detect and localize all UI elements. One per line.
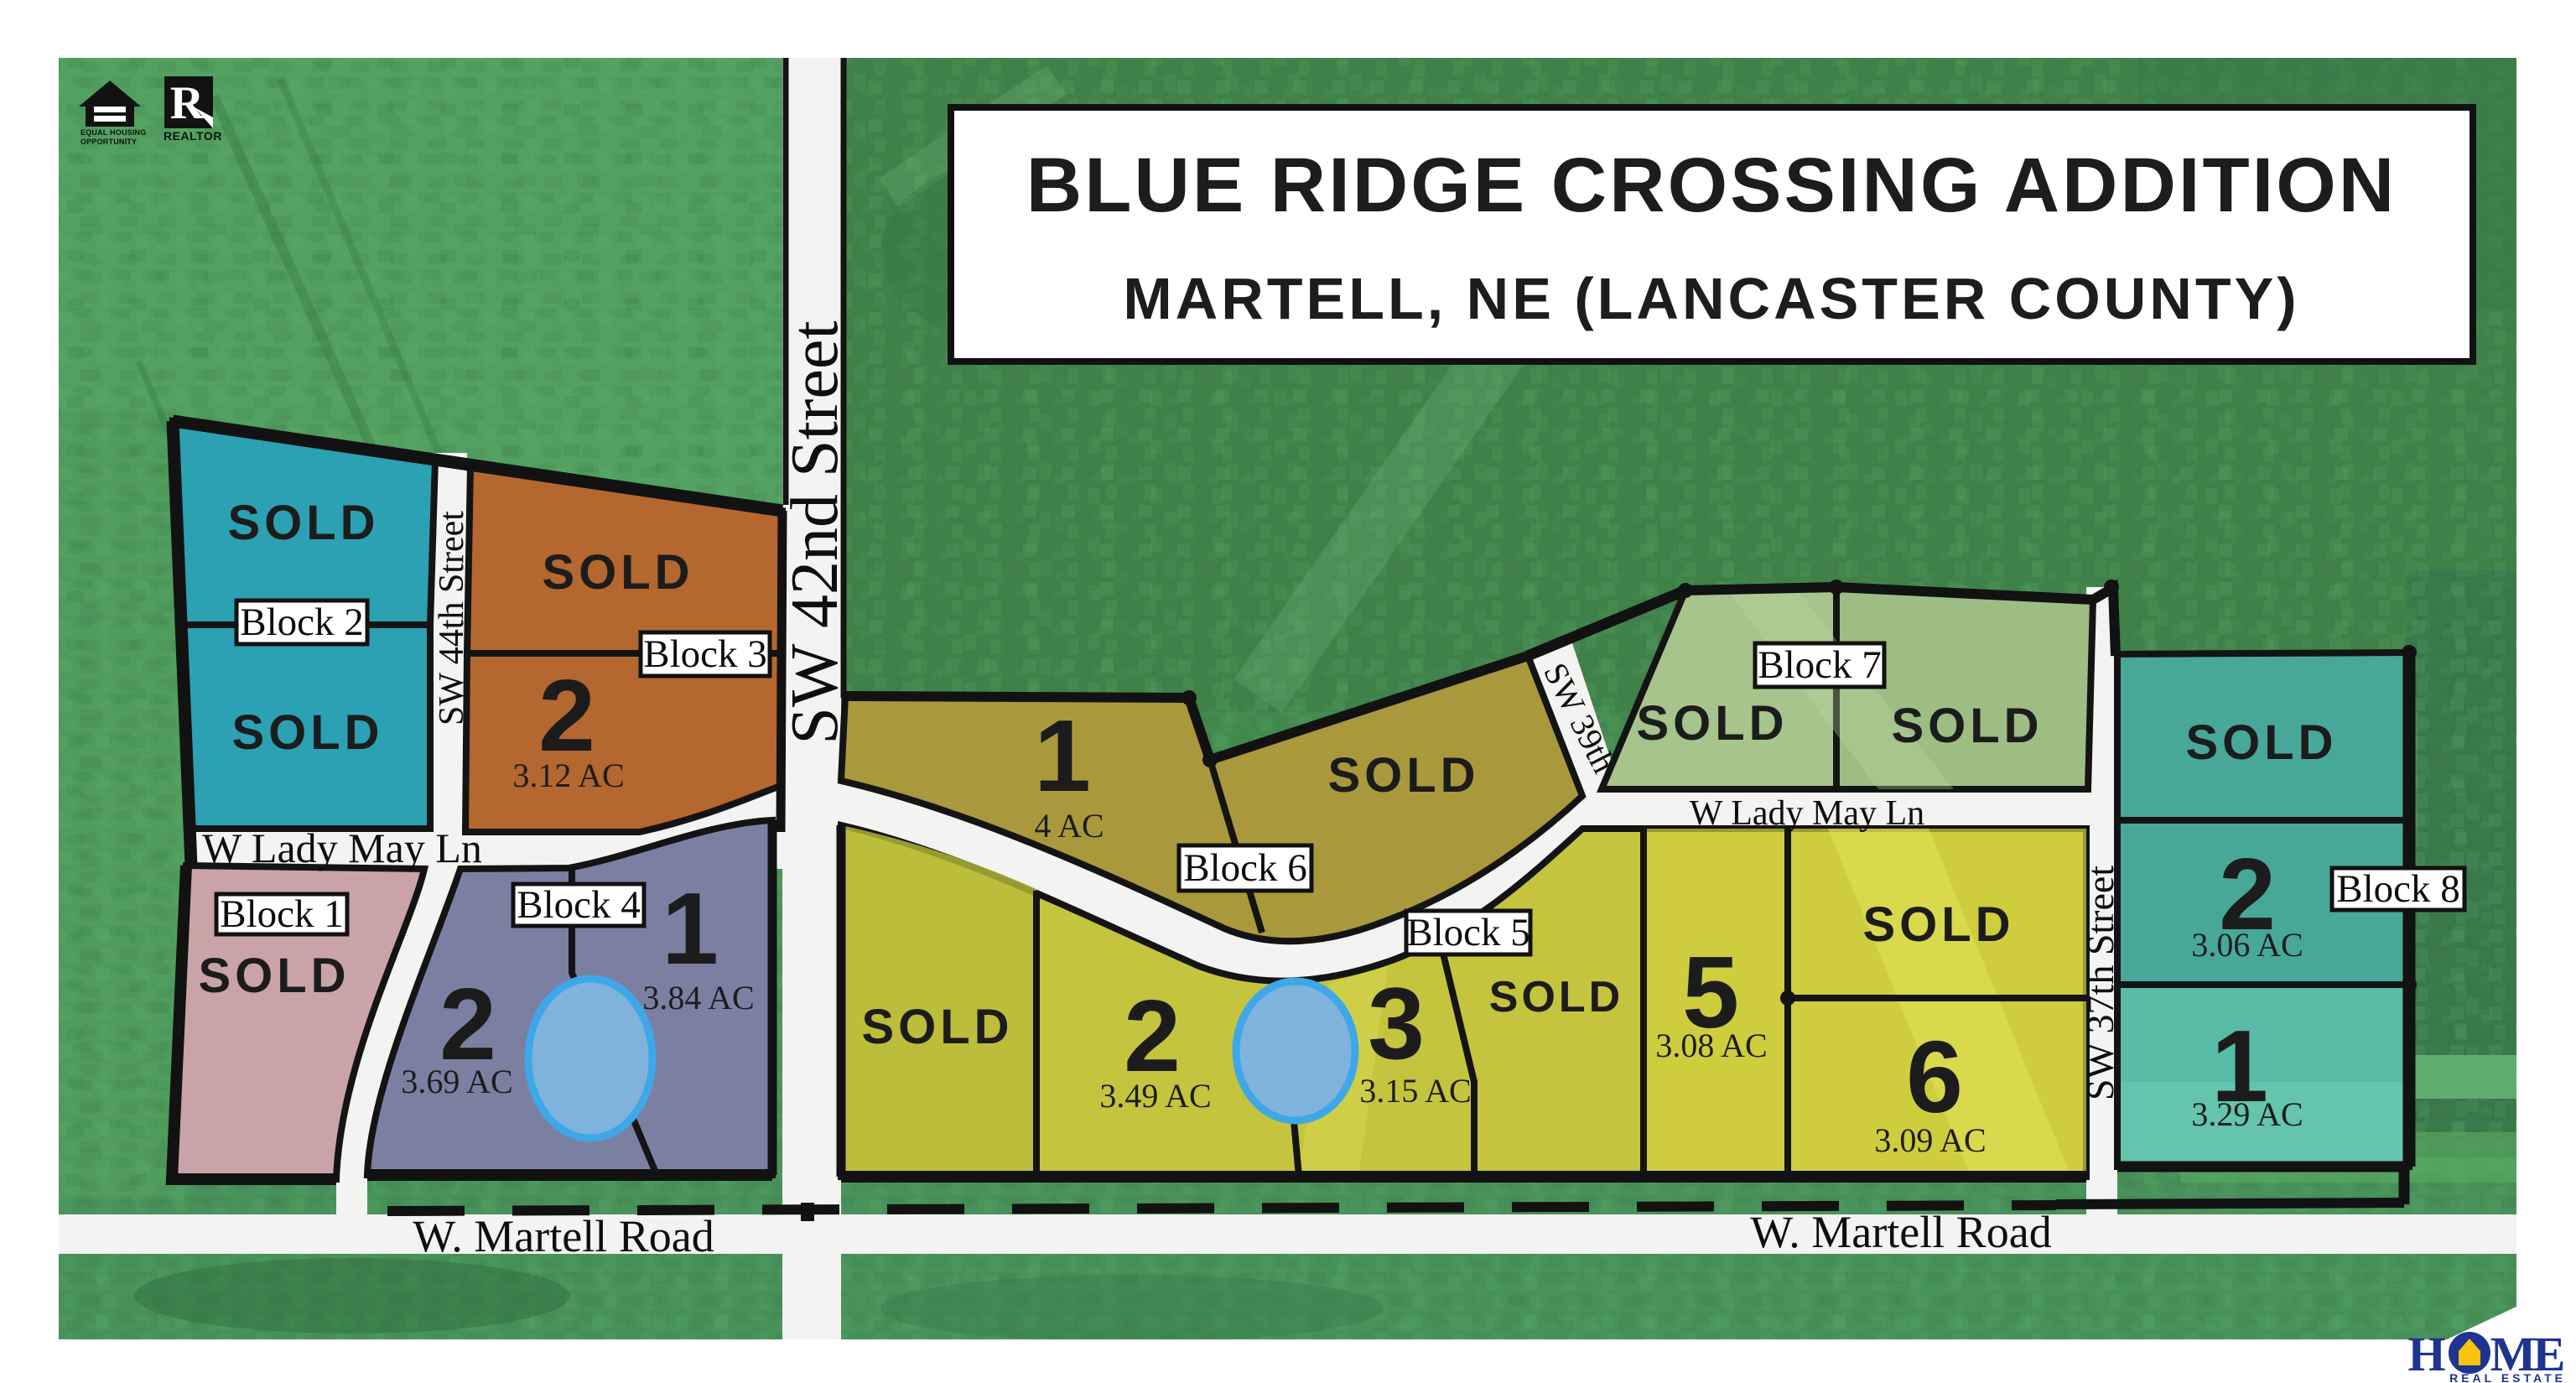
svg-text:Block 6: Block 6: [1183, 846, 1307, 890]
svg-text:Block 3: Block 3: [643, 632, 767, 676]
svg-text:3.69 AC: 3.69 AC: [401, 1063, 512, 1100]
svg-text:3: 3: [1368, 966, 1425, 1080]
svg-text:SW 44th Street: SW 44th Street: [433, 511, 471, 725]
svg-text:3.08 AC: 3.08 AC: [1655, 1027, 1767, 1064]
svg-text:OPPORTUNITY: OPPORTUNITY: [80, 138, 137, 146]
svg-text:SW 42nd Street: SW 42nd Street: [778, 320, 852, 744]
svg-text:SOLD: SOLD: [861, 1000, 1013, 1054]
svg-text:W Lady May Ln: W Lady May Ln: [1690, 794, 1924, 833]
svg-text:R: R: [170, 77, 205, 129]
svg-text:3.06 AC: 3.06 AC: [2191, 926, 2303, 964]
svg-text:6: 6: [1906, 1020, 1963, 1134]
svg-text:MARTELL, NE (LANCASTER COUNTY): MARTELL, NE (LANCASTER COUNTY): [1123, 266, 2299, 331]
svg-text:2: 2: [538, 658, 595, 772]
svg-text:SOLD: SOLD: [1327, 748, 1479, 803]
svg-text:W. Martell Road: W. Martell Road: [1750, 1207, 2051, 1257]
svg-text:3.49 AC: 3.49 AC: [1099, 1077, 1211, 1115]
svg-text:2: 2: [1124, 979, 1181, 1093]
svg-text:BLUE RIDGE CROSSING ADDITION: BLUE RIDGE CROSSING ADDITION: [1026, 143, 2397, 228]
svg-text:1: 1: [1034, 699, 1091, 813]
svg-text:SOLD: SOLD: [1862, 897, 2014, 952]
svg-text:SW 37th Street: SW 37th Street: [2079, 866, 2122, 1100]
svg-text:3.29 AC: 3.29 AC: [2191, 1095, 2303, 1133]
svg-text:SOLD: SOLD: [1489, 973, 1623, 1022]
svg-text:W. Martell Road: W. Martell Road: [413, 1211, 714, 1261]
svg-text:3.15 AC: 3.15 AC: [1359, 1072, 1471, 1110]
svg-text:SOLD: SOLD: [2185, 715, 2337, 770]
svg-text:Block 1: Block 1: [220, 892, 344, 936]
svg-text:SOLD: SOLD: [542, 545, 693, 600]
svg-text:3.84 AC: 3.84 AC: [642, 979, 754, 1016]
svg-text:REALTOR: REALTOR: [164, 129, 222, 143]
svg-text:Block 8: Block 8: [2336, 867, 2460, 911]
svg-text:1: 1: [662, 871, 719, 985]
svg-text:SOLD: SOLD: [198, 949, 350, 1003]
svg-text:SOLD: SOLD: [227, 496, 379, 550]
svg-text:4 AC: 4 AC: [1034, 807, 1104, 845]
svg-text:Block 5: Block 5: [1406, 911, 1530, 954]
svg-text:Block 4: Block 4: [517, 883, 641, 927]
svg-text:SOLD: SOLD: [1636, 696, 1788, 751]
svg-text:SOLD: SOLD: [231, 705, 383, 760]
svg-text:3.12 AC: 3.12 AC: [512, 756, 624, 794]
svg-text:Block 7: Block 7: [1758, 643, 1882, 687]
svg-text:3.09 AC: 3.09 AC: [1874, 1121, 1986, 1159]
svg-text:REAL ESTATE: REAL ESTATE: [2449, 1371, 2566, 1383]
svg-text:H: H: [2407, 1327, 2445, 1381]
svg-text:W Lady May Ln: W Lady May Ln: [202, 824, 482, 871]
svg-text:SOLD: SOLD: [1891, 699, 2043, 753]
svg-text:Block 2: Block 2: [240, 601, 364, 644]
svg-text:EQUAL HOUSING: EQUAL HOUSING: [80, 128, 146, 137]
